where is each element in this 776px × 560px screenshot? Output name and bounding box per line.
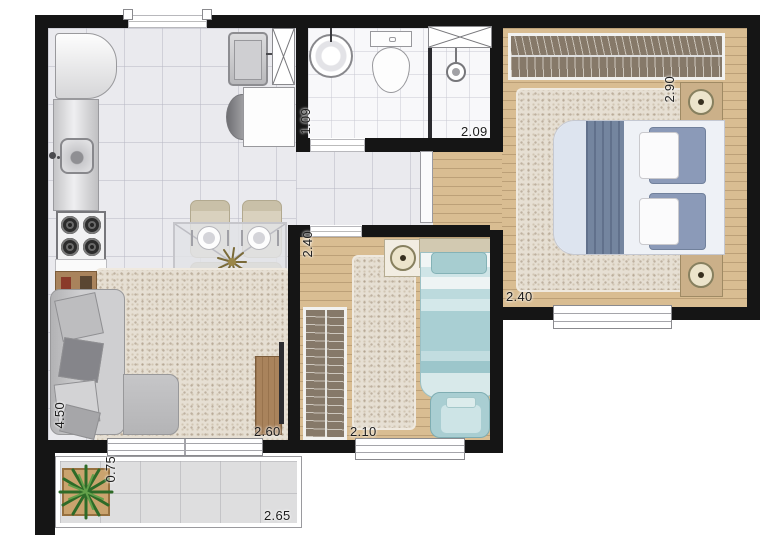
dim-master-length: 2.90	[662, 76, 677, 103]
lamp-icon	[390, 245, 416, 271]
master-wardrobe	[508, 33, 725, 80]
dim-balcony-depth: 0.75	[103, 456, 118, 483]
stove	[56, 211, 106, 261]
armchair-seat	[441, 405, 481, 433]
top-wall	[35, 15, 128, 28]
bed-runner	[586, 121, 624, 254]
living-bedroom2-wall	[288, 225, 300, 440]
decor-item	[80, 276, 92, 289]
bed-pillow-white	[639, 132, 679, 179]
dim-bedroom2-width: 2.10	[350, 424, 377, 439]
shower-partition	[428, 40, 432, 138]
master-bottom-wall	[672, 307, 760, 320]
door-jamb	[123, 9, 133, 20]
balcony-left-wall	[35, 450, 55, 535]
right-wall	[747, 15, 760, 320]
tank-basin	[234, 40, 262, 80]
wardrobe-shelf	[511, 36, 722, 57]
wardrobe-hangers	[511, 57, 722, 78]
entry-threshold	[128, 15, 207, 28]
bedroom2-door-threshold	[310, 226, 362, 237]
tv	[279, 342, 284, 424]
place-setting	[247, 226, 271, 250]
dim-bedroom2-length: 2.40	[300, 231, 315, 258]
burner-icon	[61, 238, 79, 256]
shower-head-icon	[446, 62, 466, 82]
bath-faucet-icon	[330, 28, 332, 42]
kitchen-faucet-icon	[49, 152, 56, 159]
vestibule-floor	[296, 150, 433, 225]
sofa-chaise	[123, 374, 179, 435]
bedroom2-armchair	[430, 392, 490, 438]
window-x-icon	[429, 27, 491, 47]
single-bed-pillow	[431, 252, 487, 274]
floor-plan: 1.09 2.09 2.90 2.40 2.40 2.10 2.60 4.50 …	[0, 0, 776, 560]
dim-living-length: 4.50	[52, 402, 67, 429]
fridge	[55, 33, 117, 99]
decor-item	[61, 277, 71, 289]
hallway-floor	[433, 150, 503, 230]
sofa-cushion	[58, 337, 104, 383]
washing-machine	[243, 87, 295, 147]
dim-tv-wall-width: 2.60	[254, 424, 281, 439]
balcony-sliding-door	[107, 438, 263, 456]
lamp-icon	[688, 262, 714, 288]
wardrobe-rail	[325, 310, 327, 437]
bedroom2-window	[355, 438, 465, 460]
bathroom-bottom-wall	[296, 138, 310, 152]
left-wall	[35, 15, 48, 463]
bedroom2-top-wall	[362, 225, 490, 237]
bathroom-bottom-wall	[365, 138, 503, 152]
duct-shaft	[272, 28, 295, 85]
kitchen-sink	[60, 138, 94, 174]
bedroom2-wardrobe	[303, 307, 347, 440]
bedroom2-right-wall	[490, 230, 503, 453]
shaft-x-icon	[273, 29, 294, 84]
bedroom2-rug	[352, 255, 416, 430]
burner-icon	[83, 216, 101, 234]
toilet-tank	[370, 31, 412, 47]
burner-icon	[83, 238, 101, 256]
sofa-cushion	[54, 292, 104, 342]
double-bed	[553, 120, 725, 255]
dim-balcony-width: 2.65	[264, 508, 291, 523]
burner-icon	[61, 216, 79, 234]
flush-button-icon	[389, 37, 396, 42]
shower-head-center	[452, 68, 460, 76]
master-window	[553, 305, 672, 329]
dim-master-width: 2.40	[506, 289, 533, 304]
bottom-wall-center	[263, 440, 355, 453]
lamp-icon	[688, 89, 714, 115]
door-jamb	[202, 9, 212, 20]
living-bottom-wall	[35, 440, 107, 453]
bathroom-door-threshold	[310, 139, 365, 152]
bed-pillow-white	[639, 198, 679, 245]
dim-bath-corridor-width: 1.09	[298, 108, 313, 135]
bed-sheet	[554, 121, 588, 254]
hall-door-leaf	[420, 151, 433, 223]
dim-bath-length: 2.09	[461, 124, 488, 139]
master-bottom-wall	[500, 307, 553, 320]
bathroom-window	[428, 26, 492, 48]
laundry-tank	[228, 32, 268, 86]
armchair-cushion	[446, 397, 476, 408]
